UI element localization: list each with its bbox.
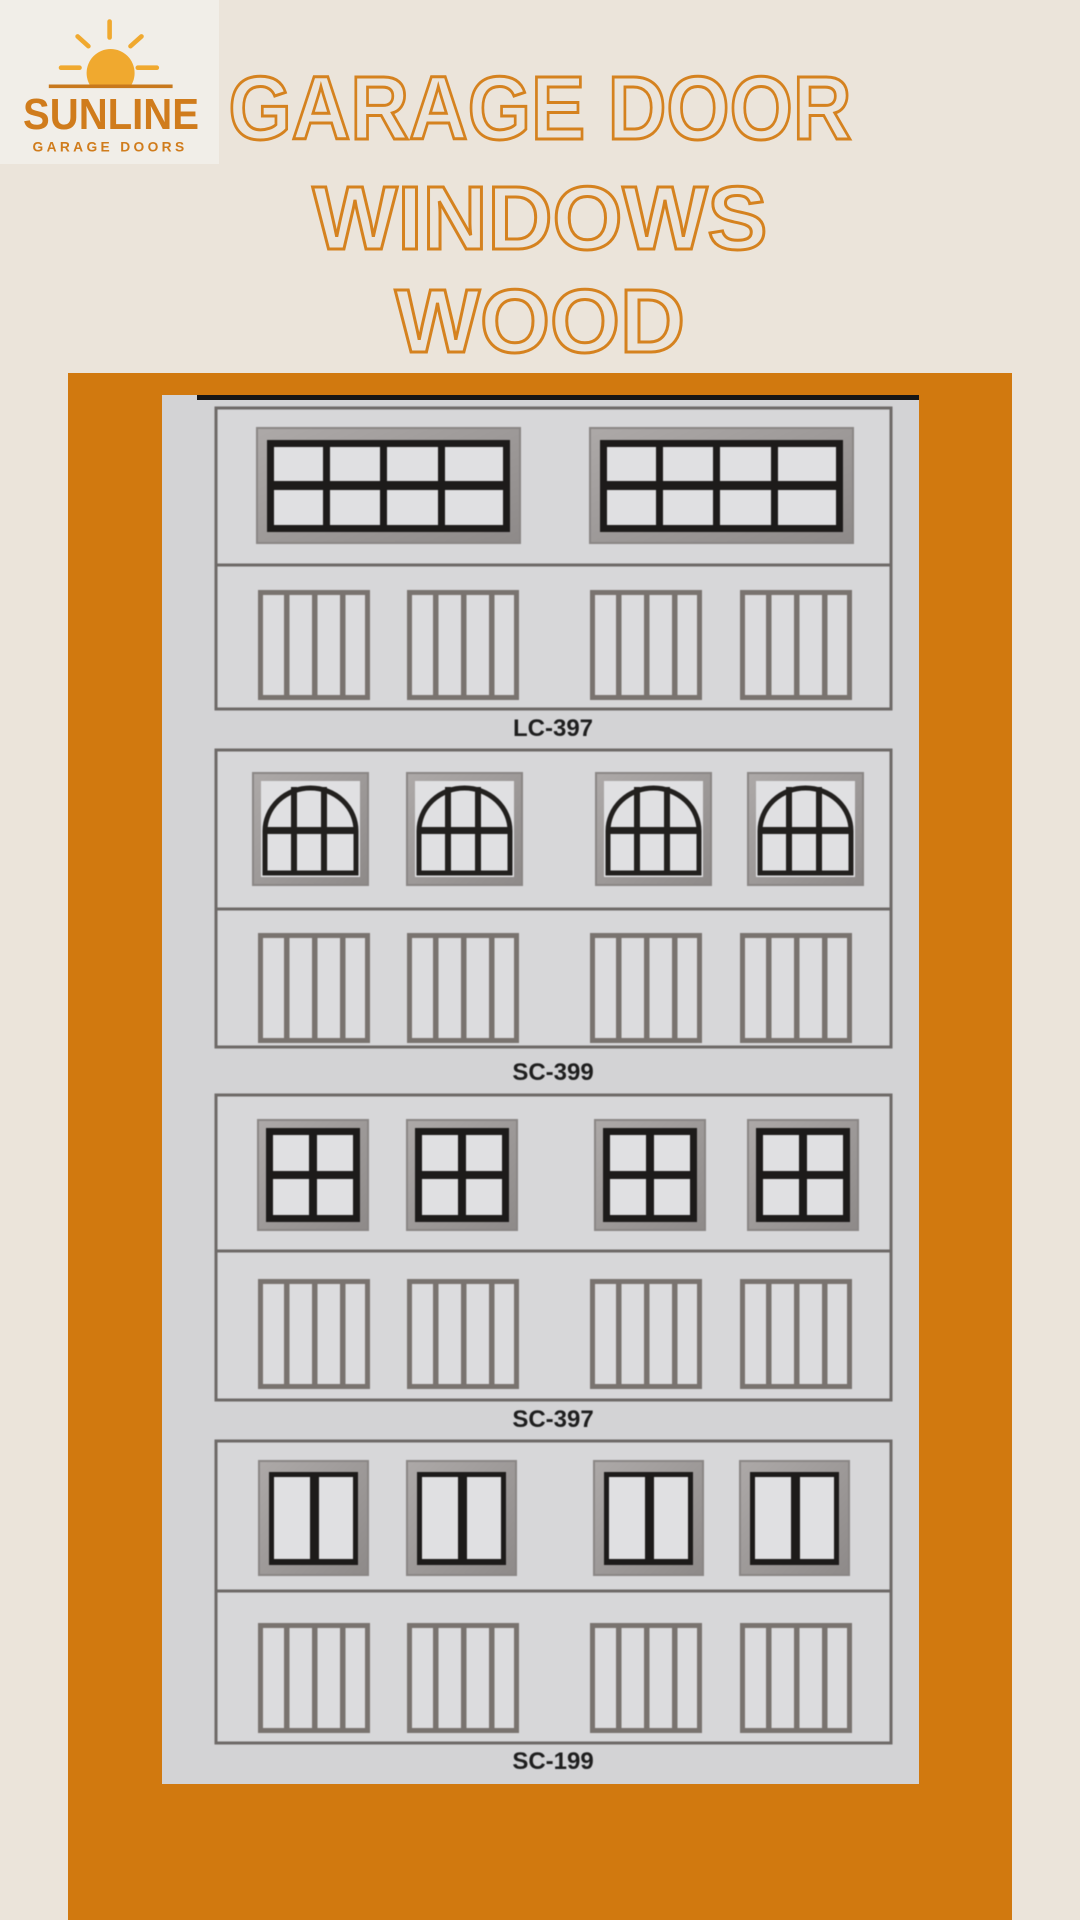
svg-text:SC-399: SC-399: [512, 1059, 593, 1086]
svg-text:LC-397: LC-397: [513, 715, 593, 742]
svg-text:SC-199: SC-199: [512, 1748, 593, 1775]
svg-text:SC-397: SC-397: [512, 1406, 593, 1433]
